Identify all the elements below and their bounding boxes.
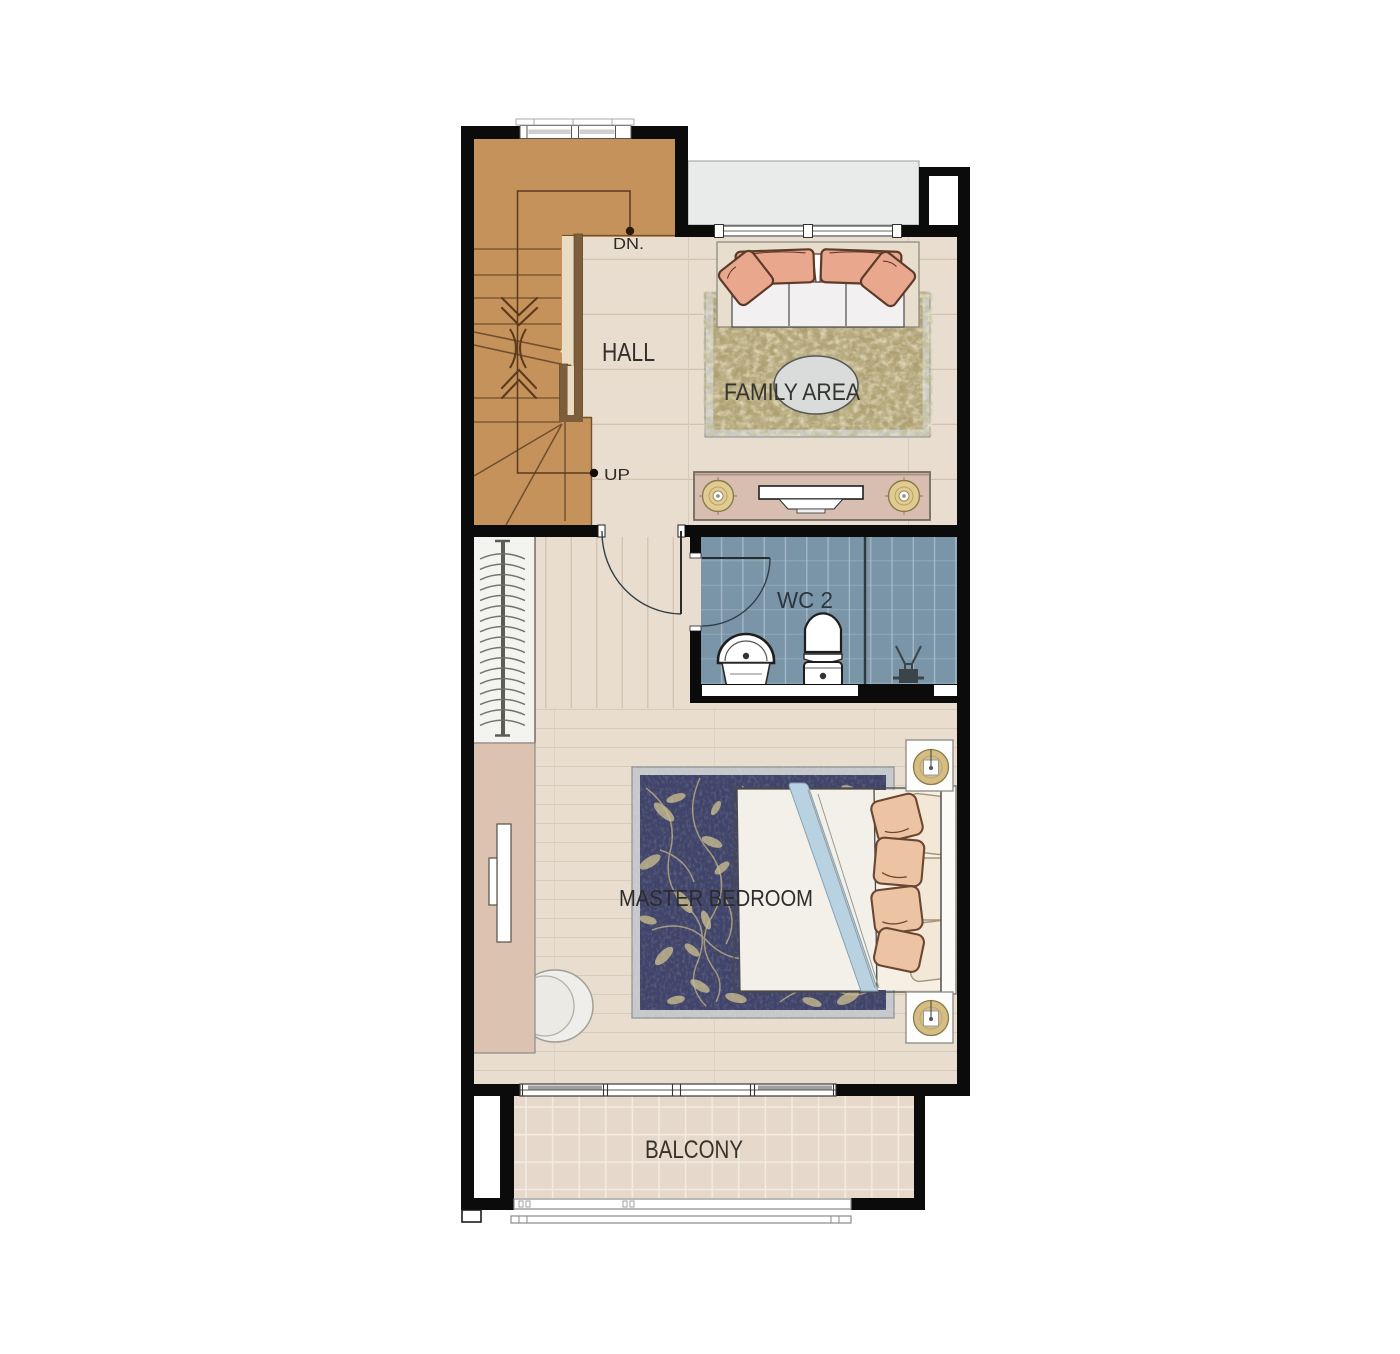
svg-text:BALCONY: BALCONY: [645, 1136, 743, 1164]
svg-text:HALL: HALL: [602, 339, 655, 367]
svg-text:WC 2: WC 2: [777, 587, 833, 613]
svg-text:DN.: DN.: [613, 236, 644, 253]
svg-text:FAMILY AREA: FAMILY AREA: [724, 379, 860, 406]
svg-text:MASTER BEDROOM: MASTER BEDROOM: [619, 885, 813, 911]
svg-text:UP: UP: [604, 467, 630, 484]
